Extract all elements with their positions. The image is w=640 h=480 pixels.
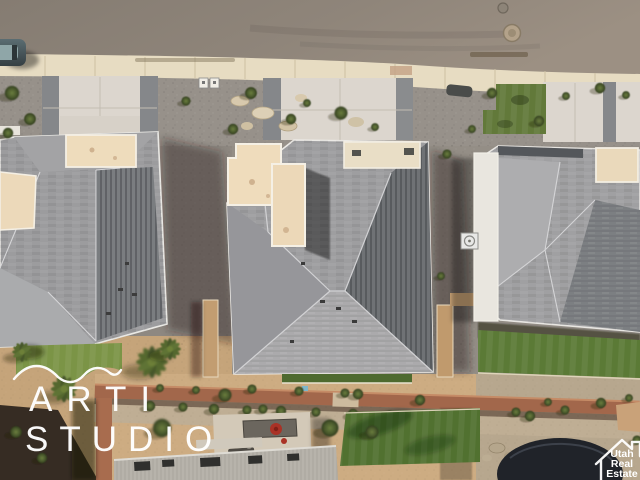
watermark-line1: ARTI <box>29 382 164 417</box>
driveways <box>0 76 640 142</box>
turf-strip <box>282 374 412 383</box>
yard-wall <box>203 300 218 377</box>
ac-unit <box>461 233 478 249</box>
watermark-line2: STUDIO <box>25 422 223 457</box>
flat-roof-cream <box>272 164 305 246</box>
flat-roof-cream <box>596 148 638 182</box>
house-center <box>227 140 433 383</box>
yard-wall <box>437 305 453 377</box>
aerial-photo: ARTI STUDIO Utah Real Estate .com <box>0 0 640 480</box>
realestate-logo: Utah Real Estate .com <box>594 433 640 480</box>
house-left <box>0 132 167 347</box>
manhole-small <box>498 3 508 13</box>
flat-roof-cream <box>0 172 36 230</box>
flat-roof-cream <box>66 135 136 167</box>
